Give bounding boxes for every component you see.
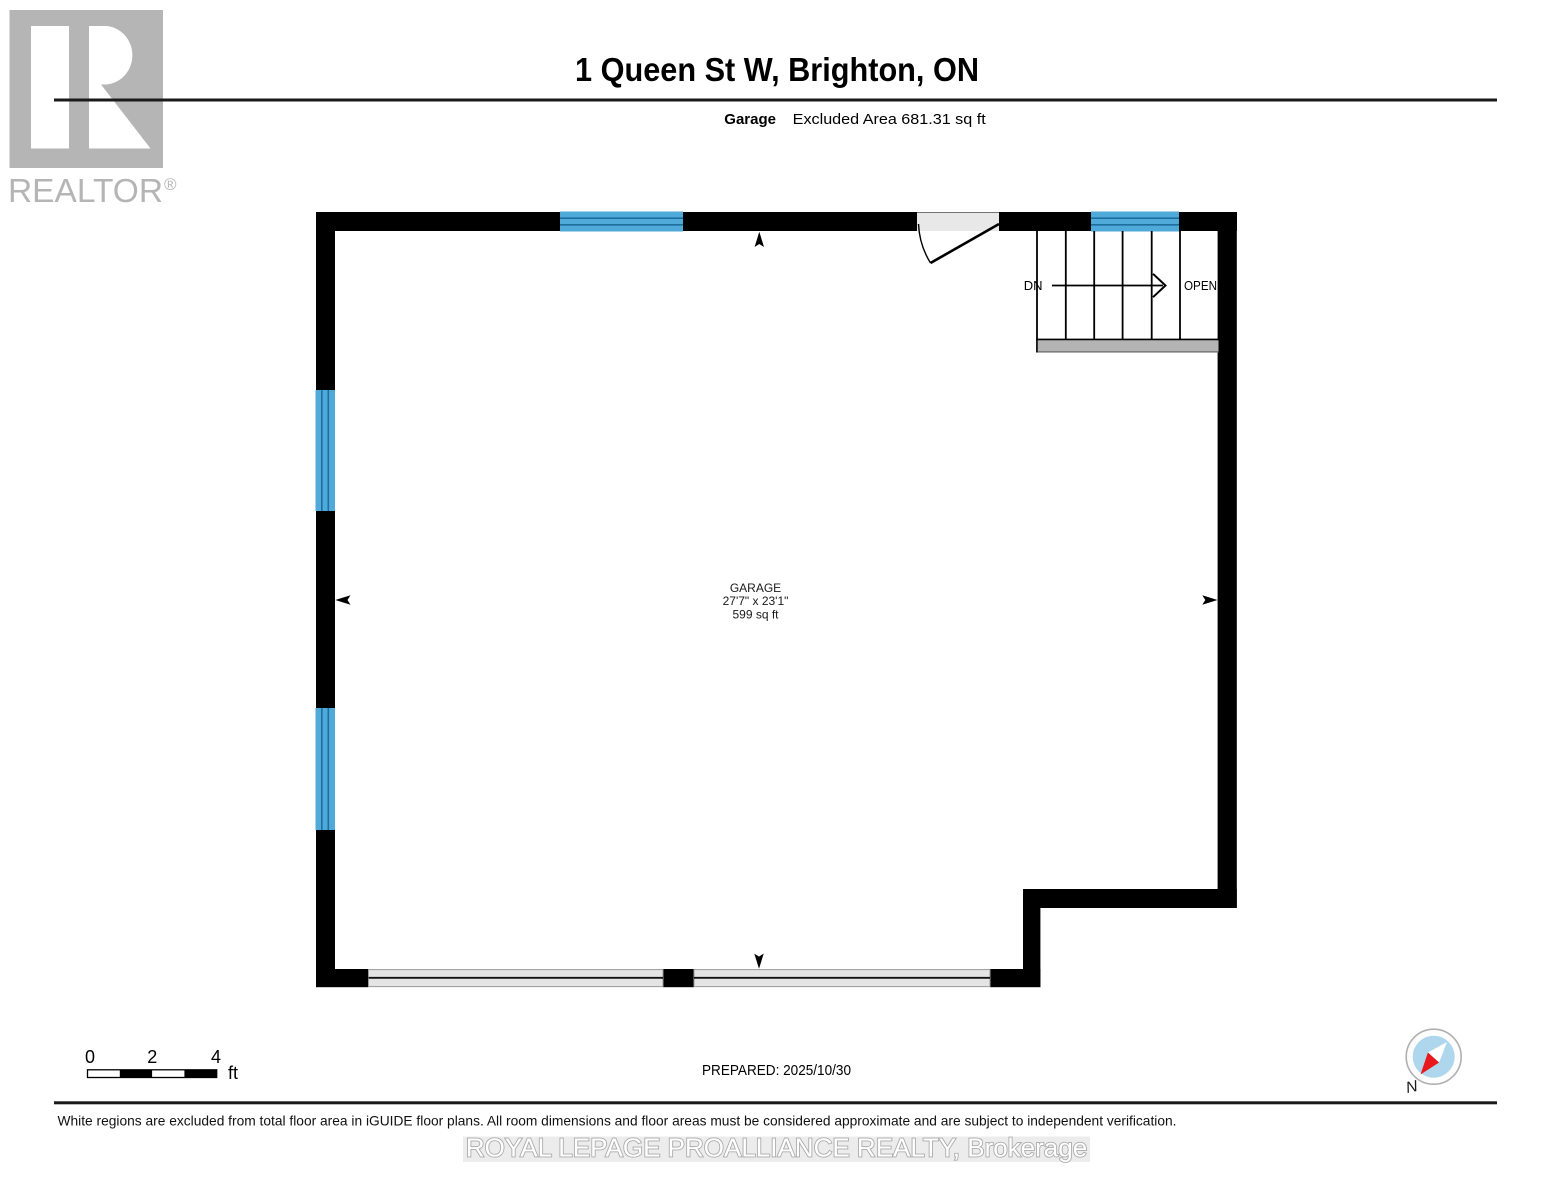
svg-text:White regions are excluded fro: White regions are excluded from total fl… <box>58 1112 1177 1128</box>
svg-text:4: 4 <box>211 1047 221 1067</box>
svg-text:1 Queen St W, Brighton, ON: 1 Queen St W, Brighton, ON <box>575 51 979 88</box>
svg-text:Garage: Garage <box>724 111 776 128</box>
svg-text:®: ® <box>164 175 177 194</box>
svg-text:599 sq ft: 599 sq ft <box>732 608 779 622</box>
svg-text:27'7" x 23'1": 27'7" x 23'1" <box>723 594 789 608</box>
svg-text:REALTOR: REALTOR <box>8 172 163 209</box>
svg-text:PREPARED: 2025/10/30: PREPARED: 2025/10/30 <box>702 1062 851 1079</box>
svg-text:ROYAL LEPAGE PROALLIANCE REALT: ROYAL LEPAGE PROALLIANCE REALTY, Brokera… <box>466 1133 1087 1163</box>
svg-text:0: 0 <box>85 1047 95 1067</box>
svg-text:2: 2 <box>147 1047 157 1067</box>
svg-text:Excluded Area 681.31 sq ft: Excluded Area 681.31 sq ft <box>793 111 987 128</box>
svg-text:GARAGE: GARAGE <box>730 581 781 595</box>
svg-text:OPEN: OPEN <box>1184 279 1217 293</box>
svg-text:N: N <box>1404 1078 1419 1097</box>
svg-text:DN: DN <box>1024 278 1043 293</box>
svg-text:ft: ft <box>228 1063 238 1083</box>
